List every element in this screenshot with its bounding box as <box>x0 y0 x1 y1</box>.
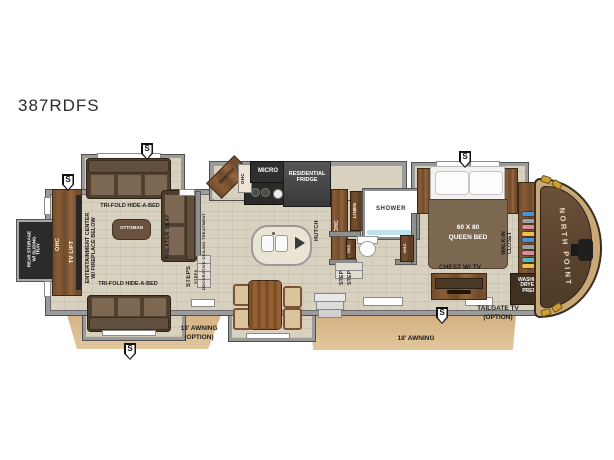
sofa-cushion <box>90 174 115 196</box>
sofa-bottom <box>87 295 171 332</box>
ohc-toilet: OHC <box>346 239 356 259</box>
ohc-rear-label: OHC <box>56 226 66 262</box>
ottoman: OTTOMAN <box>112 219 151 240</box>
ohc-bath-right: OHC <box>400 235 414 262</box>
awning-13-line1: 13' AWNING <box>166 326 232 333</box>
theater-backrest <box>186 192 195 260</box>
marker-letter: S <box>141 144 153 153</box>
marker-letter: S <box>436 308 448 317</box>
rear-window <box>45 282 50 296</box>
linen-cabinet: LINEN <box>350 191 364 231</box>
slide-marker: S <box>62 174 74 191</box>
entry-step <box>317 302 343 309</box>
walkin-closet-label: WALK-IN CLOSET <box>500 221 516 265</box>
ceiling-treatment-label: DECORATIVE CEILING TREATMENT <box>202 206 208 296</box>
kitchen-island <box>251 225 312 266</box>
kitchen-sink-round <box>274 190 282 198</box>
theater-seat-label: THEATER SEAT <box>166 214 176 260</box>
marker-letter: S <box>459 152 471 161</box>
bed-blanket: 60 X 80 QUEEN BED <box>428 199 508 269</box>
hutch-label: HUTCH <box>315 214 325 248</box>
slide-marker: S <box>436 307 448 324</box>
marker-letter: S <box>124 344 136 353</box>
island-sink <box>276 236 287 251</box>
residential-fridge: RESIDENTIAL FRIDGE <box>284 162 330 206</box>
ottoman-label: OTTOMAN <box>113 226 150 231</box>
ohc-kitchen-label: OHC <box>241 167 249 190</box>
burner <box>262 189 269 196</box>
island-sink <box>262 236 273 251</box>
bed-pillow <box>469 171 503 195</box>
rear-storage-label: REAR STORAGE W/ SLIDING TRAY <box>23 224 47 275</box>
bed-label-line1: 60 X 80 <box>428 225 508 232</box>
sofa-cushion <box>143 297 167 317</box>
cooktop-counter <box>245 182 286 204</box>
tailgate-line2: (OPTION) <box>460 315 536 322</box>
divider-wall <box>196 192 200 256</box>
microwave: MICRO <box>251 162 285 182</box>
island-bowl <box>295 235 305 251</box>
dinette-chair <box>283 308 302 330</box>
trifold-top-label: TRI-FOLD HIDE-A-BED <box>88 204 172 210</box>
slide-marker: S <box>141 143 153 160</box>
floorplan-canvas: 387RDFS REAR STORAGE W/ SLIDING TRAY OHC… <box>0 0 614 460</box>
wall-window <box>192 300 214 306</box>
entry-step <box>319 310 341 317</box>
entry-step <box>315 294 345 301</box>
dinette-chair <box>283 286 302 308</box>
linen-label: LINEN <box>353 197 361 225</box>
ohc-toilet-label: OHC <box>348 242 354 256</box>
steps-small-label: STEPS <box>194 263 200 291</box>
wall-window <box>180 190 194 195</box>
bed-label-line2: QUEEN BED <box>428 235 508 242</box>
bed-pillow <box>435 171 469 195</box>
marker-letter: S <box>62 175 74 184</box>
chest-handle <box>447 290 471 294</box>
page-title: 387RDFS <box>18 96 100 116</box>
chest-drawer <box>436 279 482 288</box>
shower-label: SHOWER <box>365 206 417 212</box>
tailgate-label: TAILGATE TV (OPTION) <box>460 306 536 322</box>
slide-marker: S <box>124 343 136 360</box>
slide-window <box>103 331 155 335</box>
hitch-pin-knob <box>578 239 593 261</box>
fridge-label-line2: FRIDGE <box>284 178 330 184</box>
shower: SHOWER <box>363 189 419 239</box>
slide-marker: S <box>459 151 471 168</box>
rear-window <box>45 198 50 214</box>
chest-label: CHEST W/ TV <box>423 265 497 272</box>
awning-13-label: 13' AWNING (OPTION) <box>166 326 232 342</box>
awning-13-line2: (OPTION) <box>166 335 232 342</box>
burner <box>252 189 259 196</box>
tailgate-line1: TAILGATE TV <box>460 306 536 313</box>
sofa-top <box>86 158 171 199</box>
slide-window <box>247 334 289 338</box>
chest-with-tv <box>431 273 487 300</box>
sofa-backrest <box>88 160 169 173</box>
island-faucet <box>272 232 275 235</box>
sofa-cushion <box>91 297 115 317</box>
micro-label: MICRO <box>251 168 285 174</box>
toilet-bowl <box>360 242 375 256</box>
ohc-bath-tall-label: OHC <box>335 211 344 241</box>
step-label-2: STEP <box>348 266 356 290</box>
sofa-backrest <box>89 317 169 330</box>
wall-window <box>364 298 402 305</box>
sofa-cushion <box>117 297 141 317</box>
ohc-kitchen: OHC <box>239 165 251 192</box>
dinette-table <box>249 281 281 329</box>
ohc-bath-right-label: OHC <box>403 240 411 257</box>
trifold-bottom-label: TRI-FOLD HIDE-A-BED <box>86 282 170 288</box>
tv-lift-label: TV LIFT <box>70 230 80 274</box>
awning-18-label: 18' AWNING <box>380 336 452 343</box>
slide-window <box>471 162 499 166</box>
bath-wall <box>330 232 360 236</box>
sofa-cushion <box>117 174 142 196</box>
